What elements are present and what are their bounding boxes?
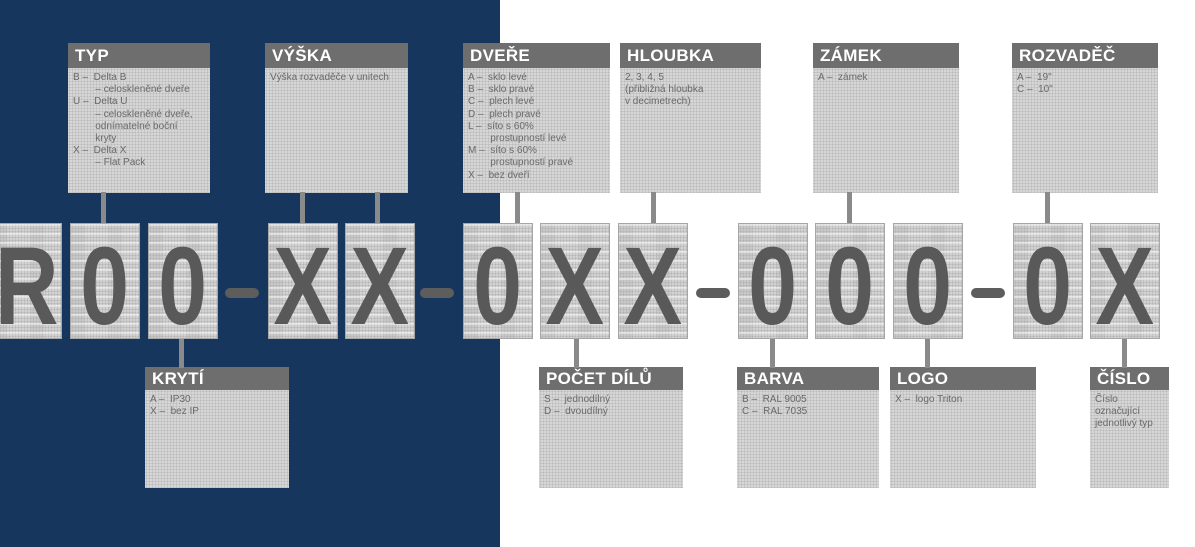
- code-char-cell: 0: [148, 223, 218, 339]
- legend-box-barva: BARVA B – RAL 9005 C – RAL 7035: [737, 367, 879, 488]
- legend-box-rozvadec: ROZVADĚČ A – 19" C – 10": [1012, 43, 1158, 193]
- legend-box-cislo: ČÍSLO Číslo označující jednotlivý typ: [1090, 367, 1169, 488]
- legend-box-zamek: ZÁMEK A – zámek: [813, 43, 959, 193]
- legend-box-vyska: VÝŠKA Výška rozvaděče v unitech: [265, 43, 408, 193]
- legend-box-body: B – RAL 9005 C – RAL 7035: [737, 390, 879, 488]
- code-separator-icon: [420, 288, 454, 298]
- connector-kryti: [179, 339, 184, 368]
- legend-box-title: VÝŠKA: [265, 43, 408, 68]
- legend-box-pocet-dilu: POČET DÍLŮ S – jednodílný D – dvoudílný: [539, 367, 683, 488]
- code-char-cell: X: [540, 223, 610, 339]
- code-separator-icon: [696, 288, 730, 298]
- code-char: X: [546, 232, 605, 339]
- connector-rozvadec: [1045, 192, 1050, 224]
- legend-box-title: ZÁMEK: [813, 43, 959, 68]
- legend-box-logo: LOGO X – logo Triton: [890, 367, 1036, 488]
- code-char: 0: [904, 232, 953, 339]
- connector-barva: [770, 339, 775, 368]
- code-char-cell: 0: [1013, 223, 1083, 339]
- code-char-cell: X: [268, 223, 338, 339]
- code-char-cell: X: [1090, 223, 1160, 339]
- legend-box-body: B – Delta B – celoskleněné dveře U – Del…: [68, 68, 210, 193]
- code-char-cell: R: [0, 223, 62, 339]
- legend-box-title: BARVA: [737, 367, 879, 390]
- code-separator-icon: [971, 288, 1005, 298]
- code-separator-icon: [225, 288, 259, 298]
- connector-cislo: [1122, 339, 1127, 368]
- code-char-cell: 0: [738, 223, 808, 339]
- legend-box-title: HLOUBKA: [620, 43, 761, 68]
- code-char-cell: 0: [463, 223, 533, 339]
- code-char-cell: X: [345, 223, 415, 339]
- code-char-cell: X: [618, 223, 688, 339]
- code-char: R: [0, 232, 59, 339]
- legend-box-kryti: KRYTÍ A – IP30 X – bez IP: [145, 367, 289, 488]
- legend-box-body: A – sklo levé B – sklo pravé C – plech l…: [463, 68, 610, 193]
- legend-box-title: DVEŘE: [463, 43, 610, 68]
- legend-box-body: A – zámek: [813, 68, 959, 193]
- code-char: X: [274, 232, 333, 339]
- code-char: 0: [159, 232, 208, 339]
- legend-box-body: 2, 3, 4, 5 (přibližná hloubka v decimetr…: [620, 68, 761, 193]
- code-char: 0: [474, 232, 523, 339]
- legend-box-dvere: DVEŘE A – sklo levé B – sklo pravé C – p…: [463, 43, 610, 193]
- code-legend-diagram: TYP B – Delta B – celoskleněné dveře U –…: [0, 0, 1195, 547]
- legend-box-body: Číslo označující jednotlivý typ: [1090, 390, 1169, 488]
- legend-box-body: X – logo Triton: [890, 390, 1036, 488]
- code-char-cell: 0: [815, 223, 885, 339]
- connector-logo: [925, 339, 930, 368]
- connector-dvere: [515, 192, 520, 224]
- legend-box-title: LOGO: [890, 367, 1036, 390]
- connector-hloubka: [651, 192, 656, 224]
- legend-box-body: A – IP30 X – bez IP: [145, 390, 289, 488]
- legend-box-body: S – jednodílný D – dvoudílný: [539, 390, 683, 488]
- connector-pocet-dilu: [574, 339, 579, 368]
- legend-box-title: ROZVADĚČ: [1012, 43, 1158, 68]
- code-char: 0: [749, 232, 798, 339]
- legend-box-typ: TYP B – Delta B – celoskleněné dveře U –…: [68, 43, 210, 193]
- code-char: X: [624, 232, 683, 339]
- code-char: X: [351, 232, 410, 339]
- legend-box-title: KRYTÍ: [145, 367, 289, 390]
- code-char: 0: [1024, 232, 1073, 339]
- code-char: 0: [81, 232, 130, 339]
- legend-box-body: A – 19" C – 10": [1012, 68, 1158, 193]
- code-char: 0: [826, 232, 875, 339]
- code-char-cell: 0: [893, 223, 963, 339]
- code-char: X: [1096, 232, 1155, 339]
- connector-zamek: [847, 192, 852, 224]
- code-char-cell: 0: [70, 223, 140, 339]
- legend-box-body: Výška rozvaděče v unitech: [265, 68, 408, 193]
- connector-vyska-1: [300, 192, 305, 224]
- connector-typ: [101, 192, 106, 224]
- legend-box-hloubka: HLOUBKA 2, 3, 4, 5 (přibližná hloubka v …: [620, 43, 761, 193]
- connector-vyska-2: [375, 192, 380, 224]
- legend-box-title: POČET DÍLŮ: [539, 367, 683, 390]
- legend-box-title: TYP: [68, 43, 210, 68]
- legend-box-title: ČÍSLO: [1090, 367, 1169, 390]
